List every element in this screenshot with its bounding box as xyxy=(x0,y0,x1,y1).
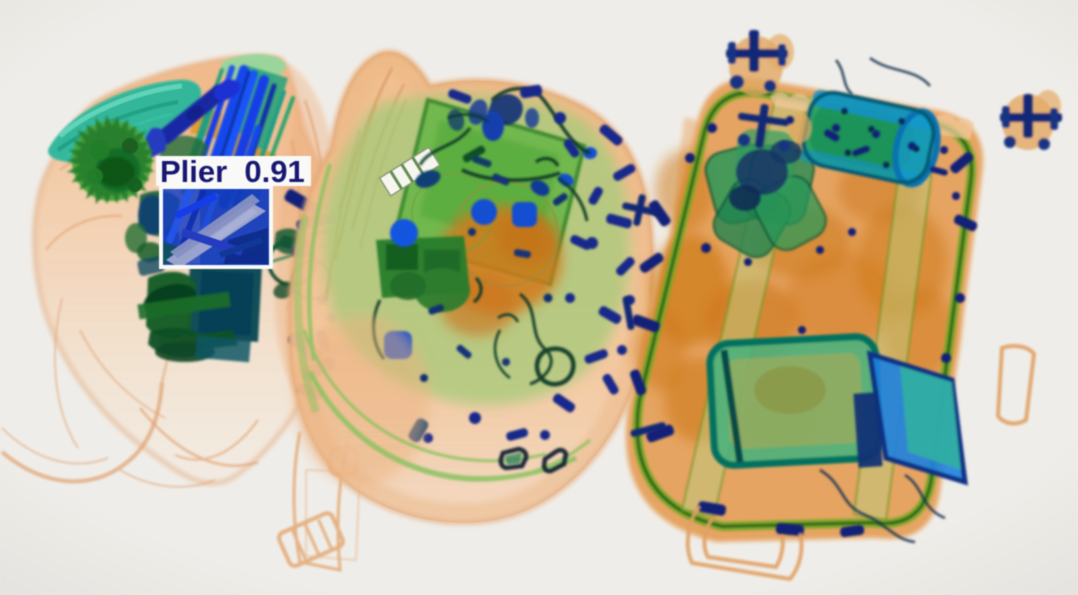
svg-text:Plier 0.91: Plier 0.91 xyxy=(160,154,305,189)
